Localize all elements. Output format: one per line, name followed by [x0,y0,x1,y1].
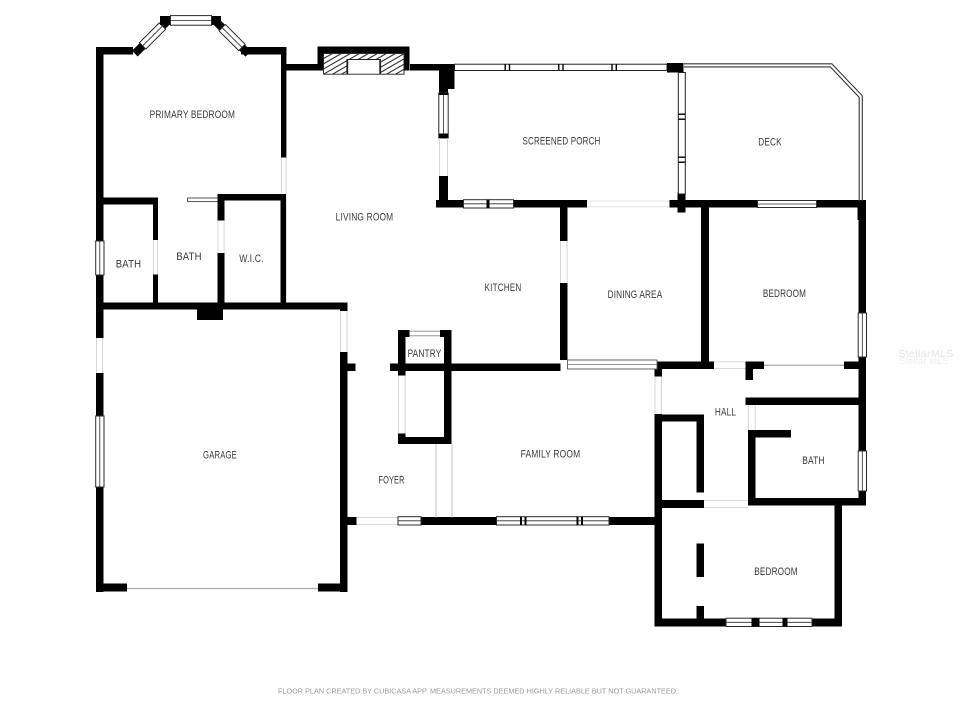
svg-text:FLOOR PLAN CREATED BY CUBICASA: FLOOR PLAN CREATED BY CUBICASA APP. MEAS… [278,687,678,696]
svg-text:LIVING ROOM: LIVING ROOM [336,211,394,223]
svg-text:W.I.C.: W.I.C. [239,253,264,265]
svg-text:BATH: BATH [176,251,202,263]
svg-text:HALL: HALL [715,406,736,418]
svg-text:BEDROOM: BEDROOM [763,288,806,300]
svg-text:BEDROOM: BEDROOM [754,566,797,578]
svg-text:SCREENED PORCH: SCREENED PORCH [523,135,601,147]
svg-text:FOYER: FOYER [378,474,404,486]
svg-text:KITCHEN: KITCHEN [485,282,522,294]
svg-text:PANTRY: PANTRY [408,348,442,360]
svg-text:DINING AREA: DINING AREA [608,289,663,301]
svg-text:PRIMARY BEDROOM: PRIMARY BEDROOM [150,109,236,121]
svg-text:FAMILY ROOM: FAMILY ROOM [521,448,581,460]
svg-text:GARAGE: GARAGE [203,449,237,461]
svg-text:DECK: DECK [758,136,782,148]
svg-text:BATH: BATH [802,455,825,467]
svg-text:BATH: BATH [116,258,142,270]
svg-text:Stellar MLS: Stellar MLS [899,356,949,366]
